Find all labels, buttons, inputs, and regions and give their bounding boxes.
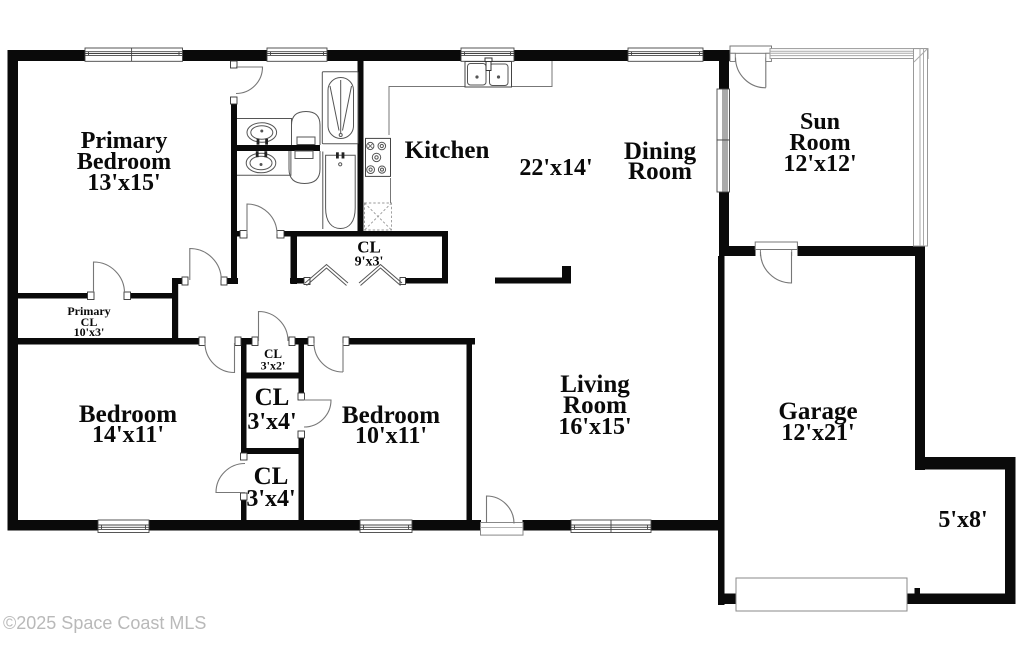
svg-text:10'x3': 10'x3' xyxy=(74,325,105,339)
svg-text:13'x15': 13'x15' xyxy=(87,170,160,196)
svg-text:14'x11': 14'x11' xyxy=(92,422,164,448)
svg-text:3'x4': 3'x4' xyxy=(247,409,296,435)
svg-text:3'x4': 3'x4' xyxy=(246,486,295,512)
svg-text:5'x8': 5'x8' xyxy=(938,507,987,533)
svg-text:9'x3': 9'x3' xyxy=(355,255,384,270)
svg-text:12'x12': 12'x12' xyxy=(783,151,856,177)
svg-text:Kitchen: Kitchen xyxy=(405,137,490,164)
svg-text:16'x15': 16'x15' xyxy=(558,414,631,440)
svg-text:10'x11': 10'x11' xyxy=(355,423,427,449)
svg-text:3'x2': 3'x2' xyxy=(261,359,286,373)
svg-text:Room: Room xyxy=(628,158,692,185)
svg-text:©2025 Space Coast MLS: ©2025 Space Coast MLS xyxy=(3,613,206,633)
svg-text:22'x14': 22'x14' xyxy=(519,155,592,181)
svg-text:CL: CL xyxy=(255,384,290,411)
svg-text:12'x21': 12'x21' xyxy=(781,420,854,446)
